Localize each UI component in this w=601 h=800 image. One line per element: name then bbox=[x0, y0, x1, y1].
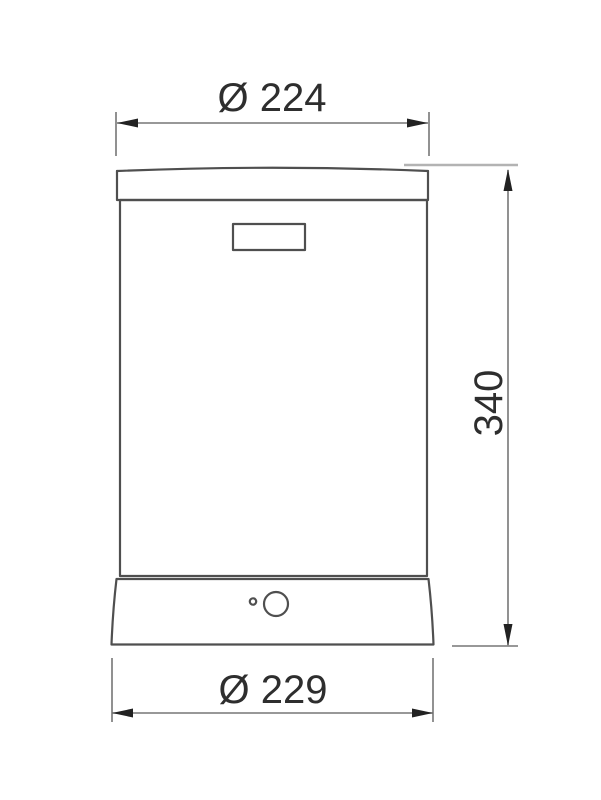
arrowhead-up bbox=[504, 169, 513, 191]
bin-body bbox=[120, 200, 427, 576]
dimension-bottom-diameter: Ø 229 bbox=[112, 658, 433, 722]
page: Ø 224 340 Ø 229 bbox=[0, 0, 601, 800]
arrowhead-left bbox=[117, 119, 138, 128]
handle-slot bbox=[233, 224, 305, 250]
base-pedestal bbox=[112, 579, 434, 645]
bin-outline bbox=[112, 168, 434, 645]
arrowhead-down bbox=[504, 624, 513, 646]
arrowhead-right bbox=[412, 709, 433, 718]
dimension-height: 340 bbox=[404, 165, 518, 646]
dimension-label-bottom-diameter: Ø 229 bbox=[219, 668, 328, 712]
arrowhead-left bbox=[112, 709, 133, 718]
dimension-label-top-diameter: Ø 224 bbox=[218, 76, 327, 120]
technical-drawing: Ø 224 340 Ø 229 bbox=[0, 0, 601, 800]
base-button-ring bbox=[264, 592, 288, 616]
dimension-label-height: 340 bbox=[467, 370, 511, 437]
arrowhead-right bbox=[407, 119, 428, 128]
lid-band bbox=[117, 171, 428, 200]
base-indicator-dot bbox=[250, 598, 256, 604]
dimension-top-diameter: Ø 224 bbox=[116, 76, 429, 156]
lid-dome-arc bbox=[117, 168, 428, 171]
